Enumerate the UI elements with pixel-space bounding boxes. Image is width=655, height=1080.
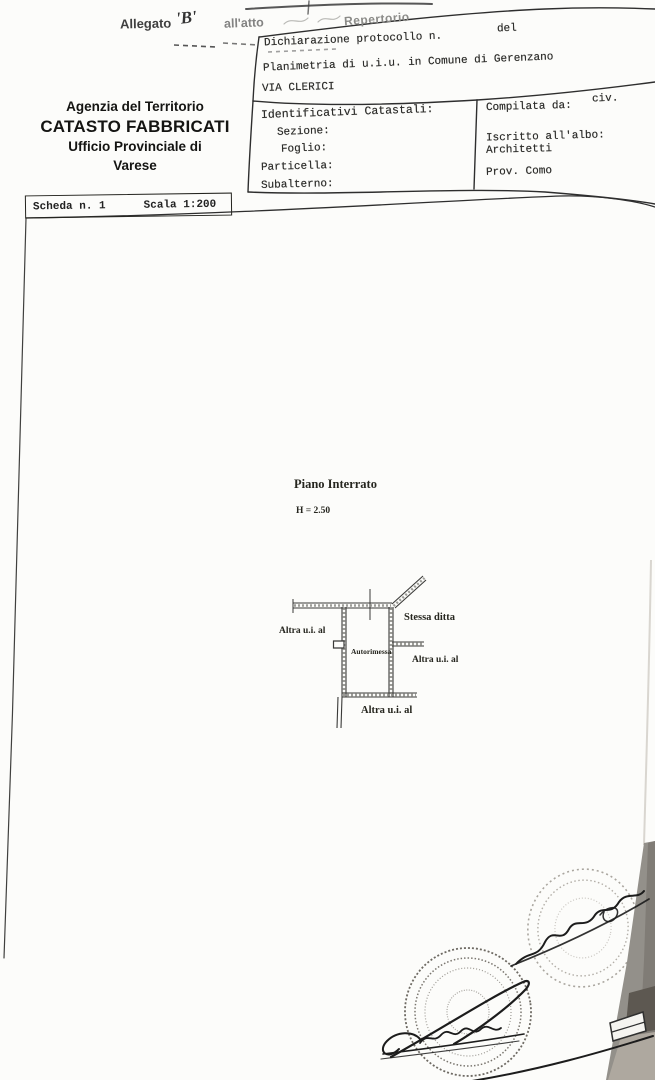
main-sheet-border	[4, 196, 655, 958]
page-edge-band	[606, 841, 655, 1080]
adjacent-top-right-label: Stessa ditta	[404, 612, 455, 623]
ceiling-height-label: H = 2.50	[296, 506, 330, 516]
foglio-label: Foglio:	[281, 142, 328, 156]
civ-label: civ.	[592, 93, 619, 106]
particella-label: Particella:	[261, 160, 334, 174]
allatto-label: all'atto	[224, 15, 264, 30]
adjacent-right-label: Altra u.i. al	[412, 655, 458, 665]
agency-line-2: CATASTO FABBRICATI	[28, 116, 242, 137]
prov-label: Prov. Como	[486, 165, 552, 179]
allegato-label: Allegato	[120, 16, 172, 32]
del-label: del	[497, 23, 517, 36]
subalterno-label: Subalterno:	[261, 178, 334, 192]
floor-plan-wall-hatching	[294, 578, 425, 696]
street-line: VIA CLERICI	[262, 81, 335, 95]
adjacent-bottom-label: Altra u.i. al	[361, 705, 412, 716]
scheda-box: Scheda n. 1 Scala 1:200	[25, 193, 232, 219]
agency-header: Agenzia del Territorio CATASTO FABBRICAT…	[28, 97, 242, 175]
albo-label: Architetti	[486, 143, 552, 157]
agency-line-4: Varese	[28, 156, 242, 175]
scale-label: Scala 1:200	[144, 198, 217, 211]
agency-line-1: Agenzia del Territorio	[28, 97, 242, 116]
handwritten-letter: 'B'	[175, 7, 198, 29]
agency-line-3: Ufficio Provinciale di	[28, 137, 242, 156]
scanned-cadastral-document: Allegato 'B' all'atto Repertorio Dichiar…	[0, 0, 655, 1080]
sezione-label: Sezione:	[277, 125, 330, 139]
adjacent-left-label: Altra u.i. al	[279, 626, 325, 636]
scheda-number: Scheda n. 1	[33, 200, 106, 213]
room-label: Autorimessa	[351, 647, 391, 656]
page-edge-shadow	[644, 560, 651, 845]
floor-title: Piano Interrato	[294, 477, 377, 492]
door-symbol	[334, 641, 345, 648]
compilata-label: Compilata da:	[486, 100, 572, 114]
